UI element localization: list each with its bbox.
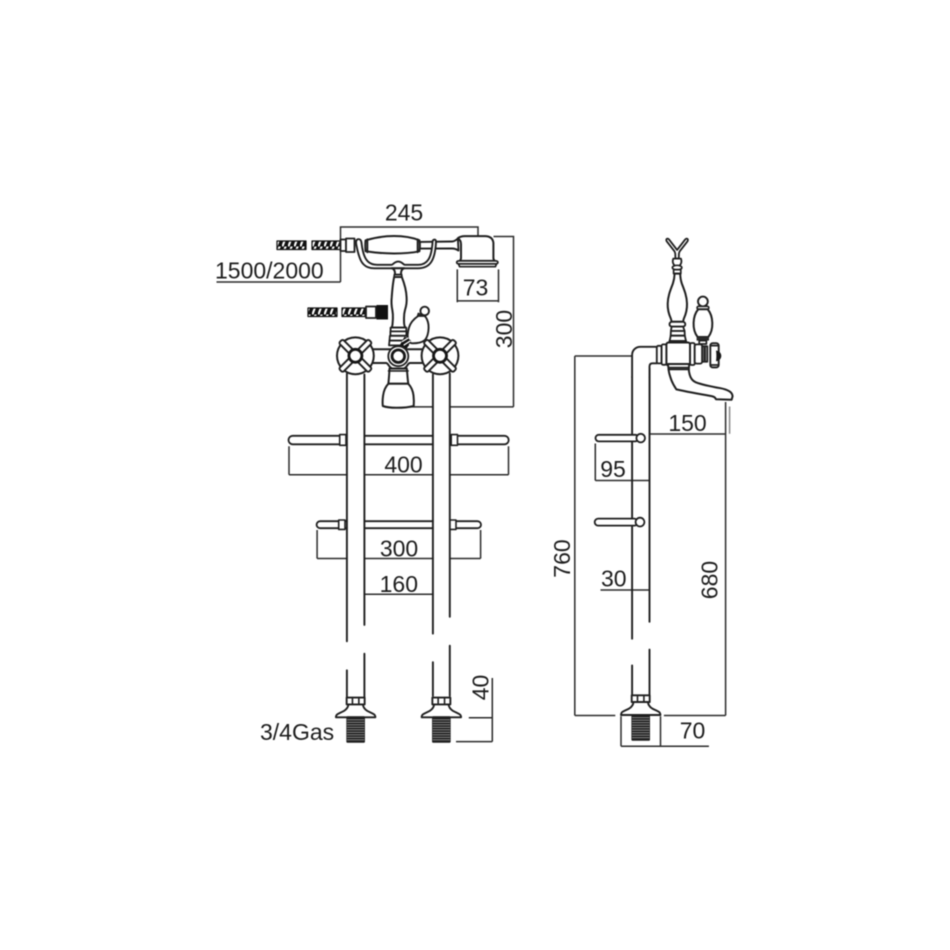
svg-text:245: 245	[385, 200, 423, 226]
svg-text:40: 40	[468, 675, 494, 701]
svg-text:70: 70	[680, 718, 706, 744]
svg-text:150: 150	[668, 410, 706, 436]
svg-text:3/4Gas: 3/4Gas	[260, 719, 334, 745]
svg-text:300: 300	[491, 310, 517, 348]
svg-text:73: 73	[463, 275, 489, 301]
svg-text:160: 160	[380, 571, 418, 597]
svg-text:95: 95	[600, 456, 626, 482]
svg-text:400: 400	[384, 452, 422, 478]
svg-text:30: 30	[601, 565, 627, 591]
svg-text:1500/2000: 1500/2000	[215, 258, 324, 284]
svg-text:760: 760	[549, 539, 575, 577]
svg-text:300: 300	[380, 536, 418, 562]
svg-text:680: 680	[697, 561, 723, 599]
